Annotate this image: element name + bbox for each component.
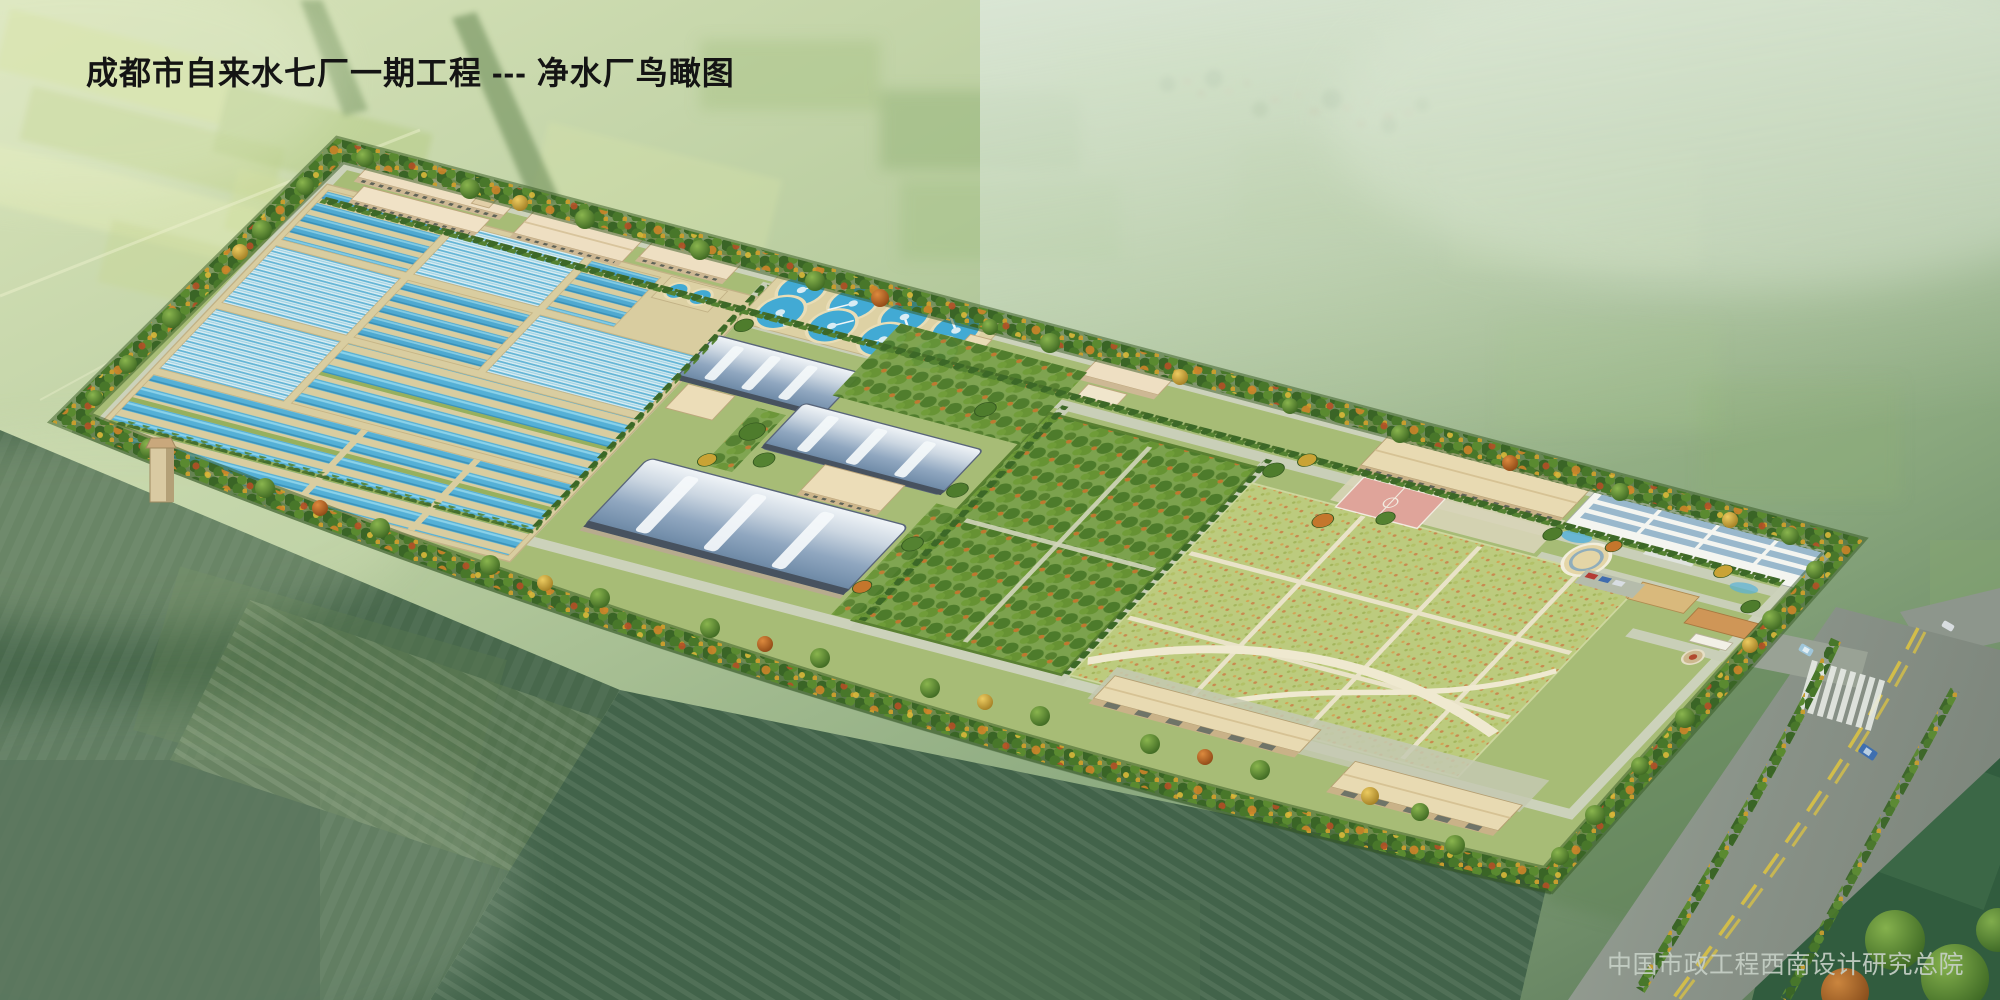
- water-tower: [146, 438, 176, 502]
- scene-canvas: 成都市自来水七厂一期工程 --- 净水厂鸟瞰图 中国市政工程西南设计研究总院: [0, 0, 2000, 1000]
- design-institute-credit: 中国市政工程西南设计研究总院: [1607, 951, 1964, 979]
- page-title: 成都市自来水七厂一期工程 --- 净水厂鸟瞰图: [86, 55, 735, 91]
- birdseye-rendering: 成都市自来水七厂一期工程 --- 净水厂鸟瞰图 中国市政工程西南设计研究总院: [0, 0, 2000, 1000]
